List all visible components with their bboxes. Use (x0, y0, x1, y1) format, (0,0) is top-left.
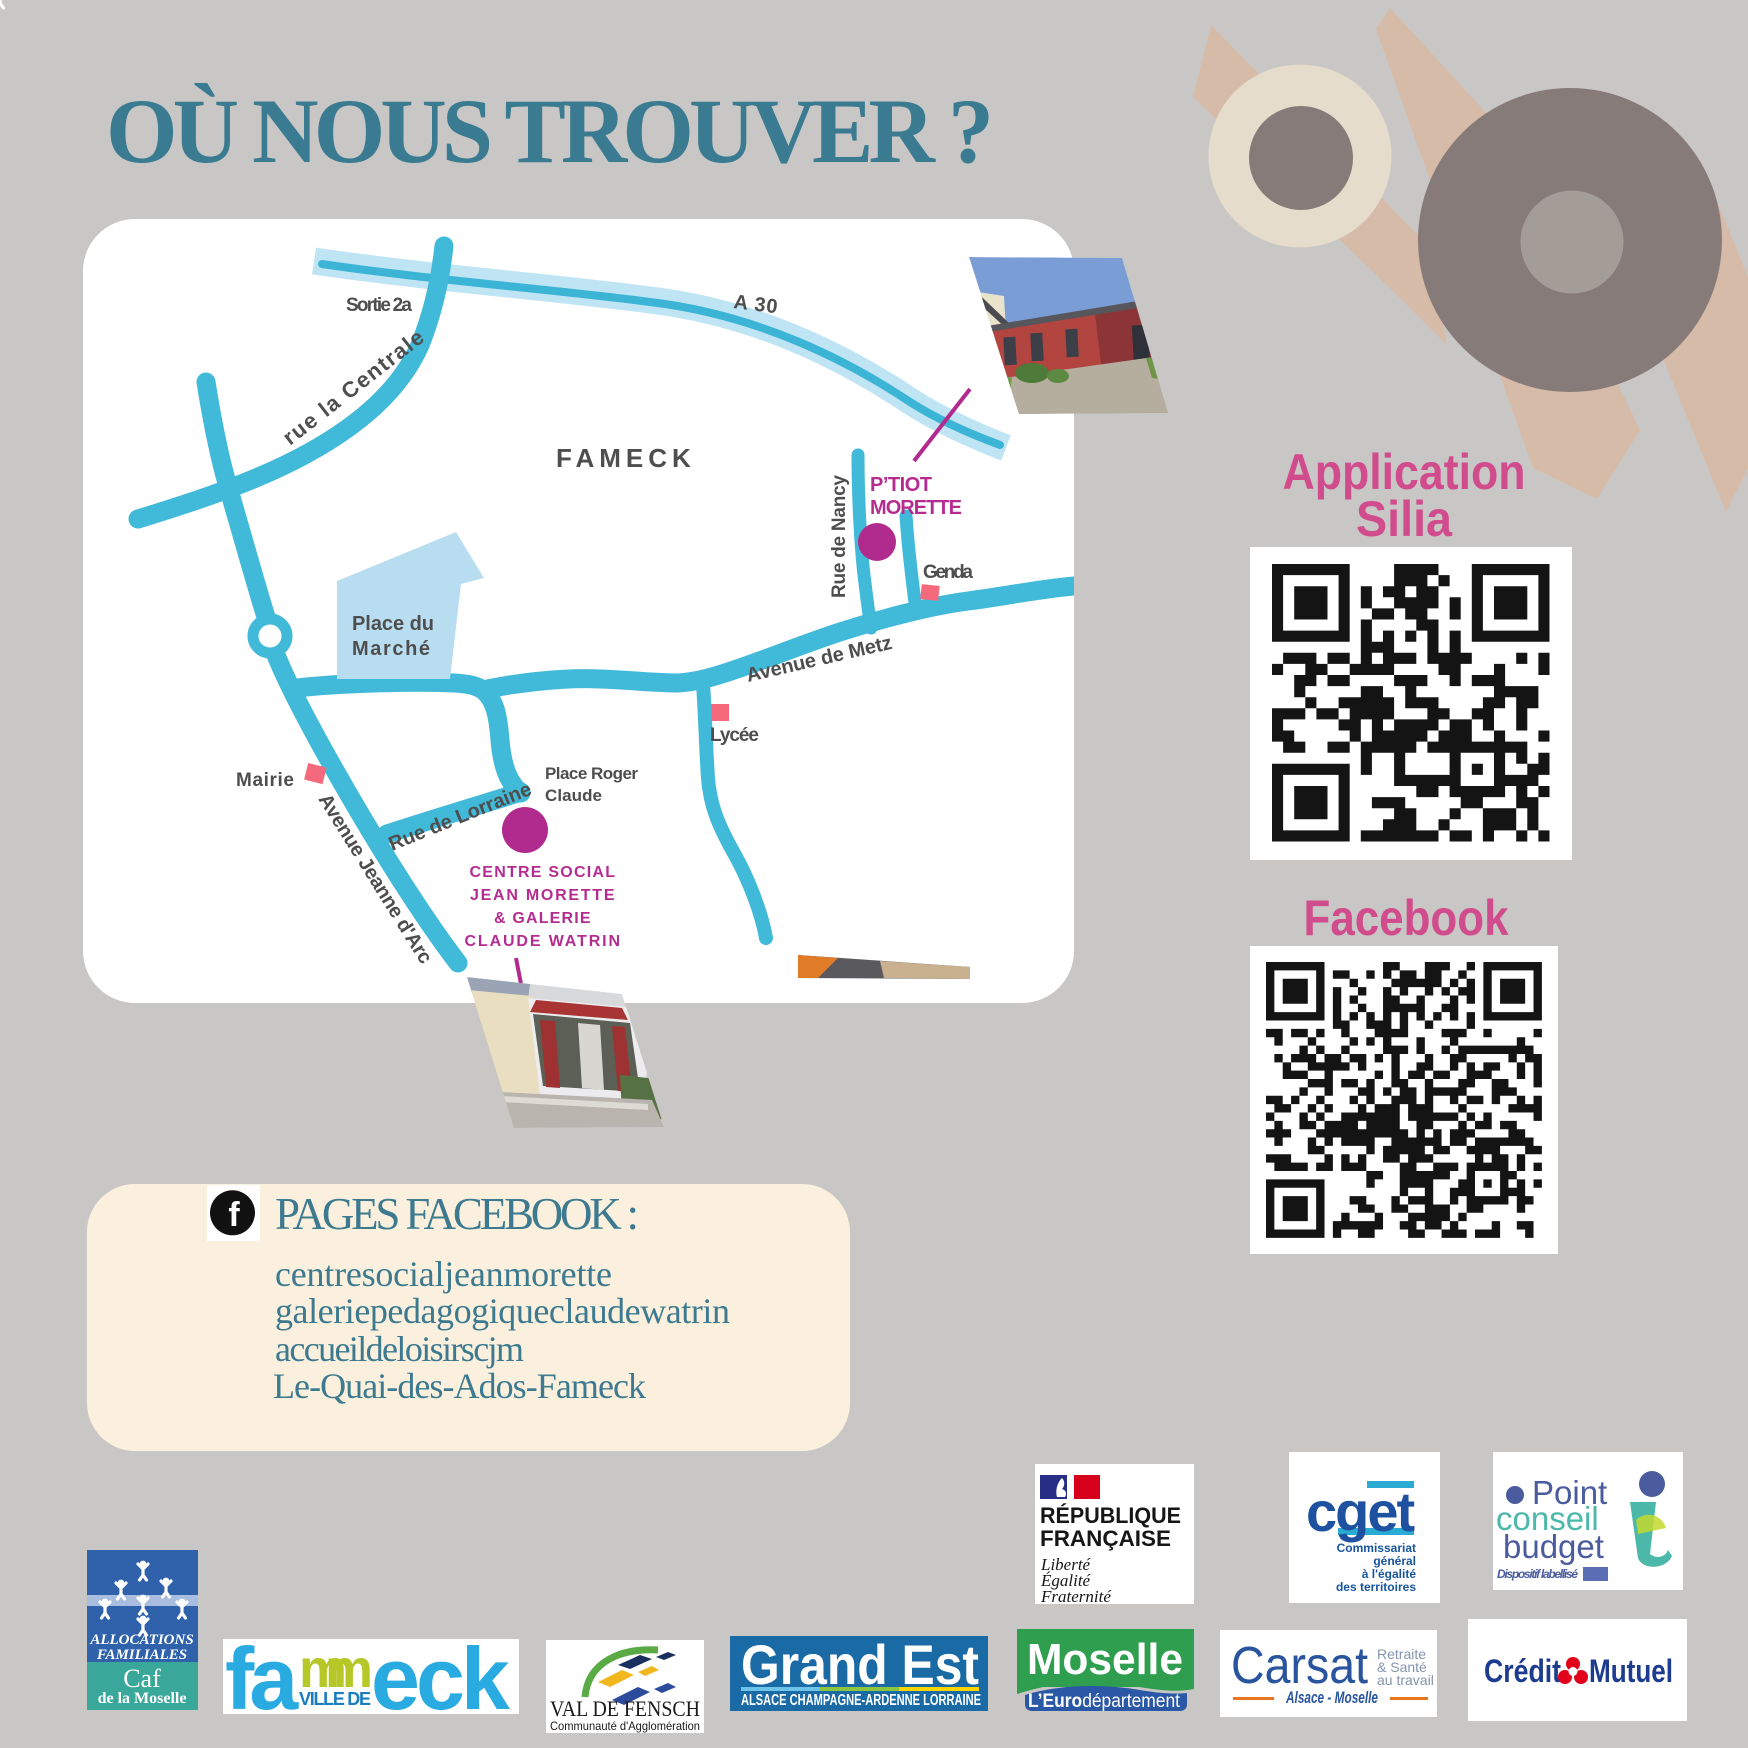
svg-text:FRANÇAISE: FRANÇAISE (1040, 1526, 1171, 1551)
svg-text:accueildeloisirscjm: accueildeloisirscjm (275, 1329, 524, 1369)
svg-text:ALLOCATIONS: ALLOCATIONS (89, 1632, 193, 1648)
svg-text:Claude: Claude (545, 786, 602, 805)
svg-text:& GALERIE: & GALERIE (494, 910, 592, 927)
svg-text:centresocialjeanmorette: centresocialjeanmorette (275, 1254, 612, 1294)
svg-text:Mutuel: Mutuel (1589, 1653, 1673, 1689)
svg-text:Crédit: Crédit (1484, 1653, 1561, 1689)
svg-text:Sortie 2a: Sortie 2a (346, 295, 412, 316)
svg-text:fa: fa (225, 1629, 299, 1728)
svg-text:galeriepedagogiqueclaudewatrin: galeriepedagogiqueclaudewatrin (275, 1291, 730, 1331)
svg-text:général: général (1373, 1554, 1416, 1568)
svg-text:des territoires: des territoires (1336, 1580, 1416, 1594)
svg-text:JEAN MORETTE: JEAN MORETTE (470, 887, 616, 904)
svg-text:Moselle: Moselle (1027, 1635, 1183, 1684)
svg-text:Caf: Caf (123, 1664, 161, 1693)
svg-text:Place Roger: Place Roger (545, 764, 638, 783)
svg-text:Rue de Nancy: Rue de Nancy (829, 475, 850, 598)
svg-text:à l'égalité: à l'égalité (1362, 1567, 1417, 1581)
svg-text:L’Eurodépartement: L’Eurodépartement (1028, 1691, 1181, 1712)
svg-text:VILLE DE: VILLE DE (299, 1689, 371, 1709)
svg-text:RÉPUBLIQUE: RÉPUBLIQUE (1040, 1503, 1181, 1528)
svg-text:PAGES FACEBOOK :: PAGES FACEBOOK : (275, 1189, 639, 1239)
svg-text:P’TIOT: P’TIOT (870, 474, 932, 496)
svg-text:Le-Quai-des-Ados-Fameck: Le-Quai-des-Ados-Fameck (273, 1366, 646, 1406)
svg-text:FAMILIALES: FAMILIALES (96, 1647, 187, 1663)
svg-text:Place du: Place du (352, 613, 434, 635)
svg-text:ALSACE CHAMPAGNE-ARDENNE LORRA: ALSACE CHAMPAGNE-ARDENNE LORRAINE (741, 1692, 981, 1709)
svg-text:cget: cget (1306, 1480, 1414, 1543)
svg-text:Genda: Genda (923, 562, 973, 583)
svg-text:FAMECK: FAMECK (556, 443, 696, 473)
svg-text:Silia: Silia (1356, 491, 1453, 547)
svg-text:Lycée: Lycée (710, 725, 759, 746)
svg-text:au travail: au travail (1377, 1672, 1434, 1688)
svg-text:Carsat: Carsat (1231, 1637, 1368, 1695)
svg-text:Dispositif labellisé: Dispositif labellisé (1497, 1567, 1578, 1581)
svg-text:MORETTE: MORETTE (870, 497, 962, 519)
svg-text:de la Moselle: de la Moselle (98, 1690, 187, 1707)
svg-text:Alsace - Moselle: Alsace - Moselle (1285, 1688, 1378, 1707)
svg-text:OÙ NOUS TROUVER ?: OÙ NOUS TROUVER ? (106, 80, 994, 182)
svg-text:f: f (228, 1196, 240, 1234)
svg-text:Facebook: Facebook (1304, 890, 1509, 946)
svg-text:Commissariat: Commissariat (1337, 1541, 1416, 1555)
svg-text:eck: eck (371, 1629, 511, 1728)
svg-text:VAL DE FENSCH: VAL DE FENSCH (550, 1696, 700, 1721)
svg-text:CENTRE SOCIAL: CENTRE SOCIAL (470, 864, 617, 881)
svg-text:Fraternité: Fraternité (1040, 1587, 1112, 1606)
svg-text:Grand Est: Grand Est (741, 1633, 979, 1696)
svg-text:budget: budget (1503, 1528, 1604, 1565)
svg-text:Communauté d'Agglomération: Communauté d'Agglomération (550, 1719, 700, 1733)
svg-text:CLAUDE WATRIN: CLAUDE WATRIN (465, 933, 622, 950)
svg-text:Mairie: Mairie (236, 770, 294, 791)
